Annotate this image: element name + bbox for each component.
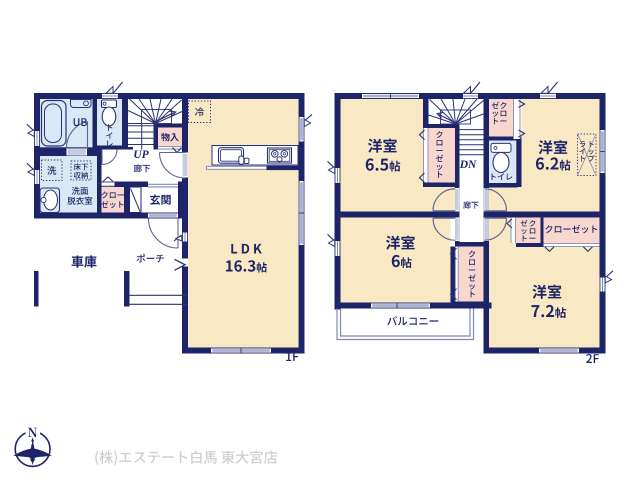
svg-text:DN: DN — [459, 159, 477, 171]
svg-text:UP: UP — [133, 149, 149, 161]
